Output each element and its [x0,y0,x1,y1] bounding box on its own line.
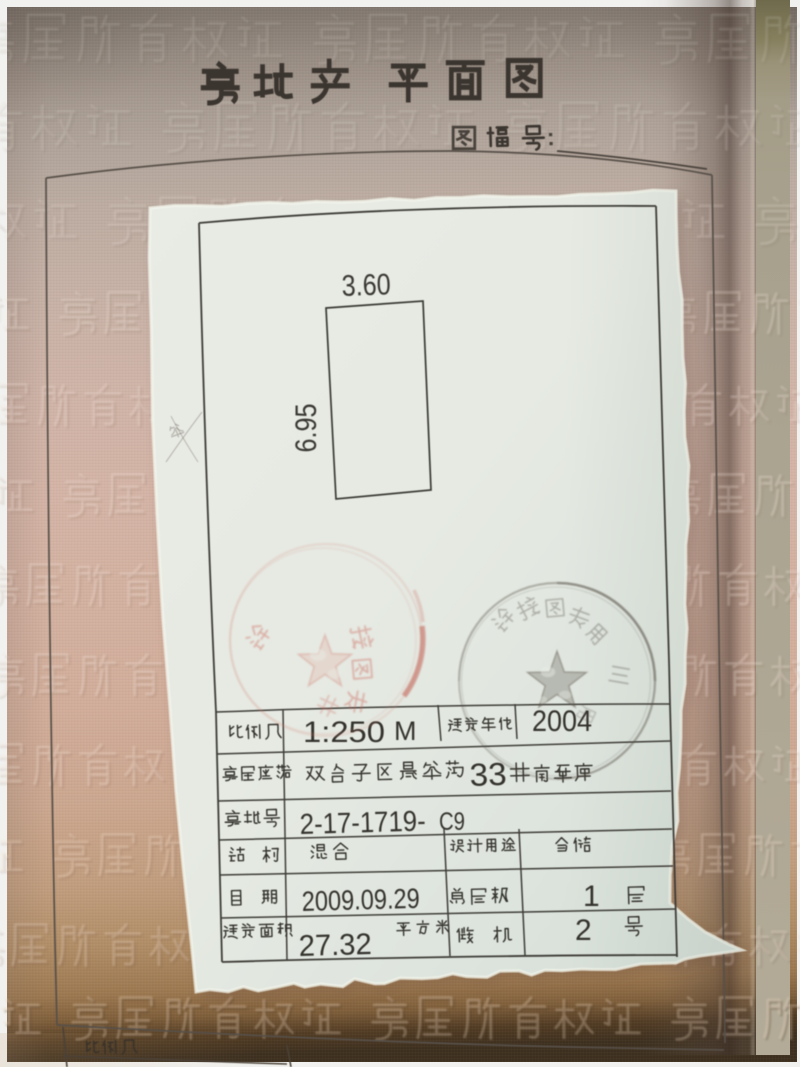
svg-text:2-17-1719-: 2-17-1719- [299,805,426,841]
svg-text:C9: C9 [439,808,465,836]
svg-text:2009.09.29: 2009.09.29 [301,883,420,917]
svg-text:2004: 2004 [532,705,592,738]
svg-text:6.95: 6.95 [290,404,323,453]
svg-text:27.32: 27.32 [298,928,372,963]
svg-text:3.60: 3.60 [341,268,391,303]
svg-text:2: 2 [575,914,592,947]
svg-text:1: 1 [583,880,600,913]
svg-text:M: M [394,716,417,746]
